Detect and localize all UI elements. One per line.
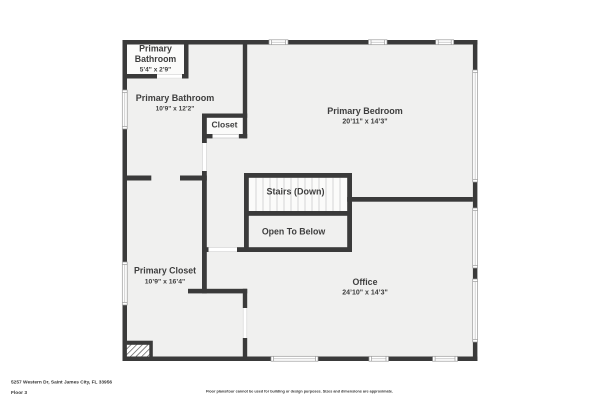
svg-text:5’4" x 2’9": 5’4" x 2’9" [140, 66, 171, 73]
svg-text:Bathroom: Bathroom [135, 54, 177, 64]
svg-text:10’9" x 16’4": 10’9" x 16’4" [145, 278, 185, 285]
svg-text:Stairs (Down): Stairs (Down) [266, 187, 324, 197]
svg-text:Floor 3: Floor 3 [11, 390, 27, 396]
svg-text:5257 Western Dr, Saint James C: 5257 Western Dr, Saint James City, FL 33… [11, 379, 112, 385]
svg-text:Floor plans/tour cannot be use: Floor plans/tour cannot be used for buil… [206, 389, 393, 393]
svg-text:Open To Below: Open To Below [262, 226, 326, 236]
svg-text:Primary: Primary [139, 44, 172, 54]
svg-text:10’9" x 12’2": 10’9" x 12’2" [156, 106, 195, 113]
svg-text:Office: Office [353, 277, 378, 287]
svg-text:20’11" x 14’3": 20’11" x 14’3" [342, 118, 387, 125]
svg-text:Primary Bedroom: Primary Bedroom [327, 106, 403, 116]
svg-text:Closet: Closet [212, 119, 238, 129]
svg-text:Primary Closet: Primary Closet [134, 266, 196, 276]
svg-text:24’10" x 14’3": 24’10" x 14’3" [342, 290, 388, 297]
svg-text:Primary Bathroom: Primary Bathroom [136, 93, 215, 103]
